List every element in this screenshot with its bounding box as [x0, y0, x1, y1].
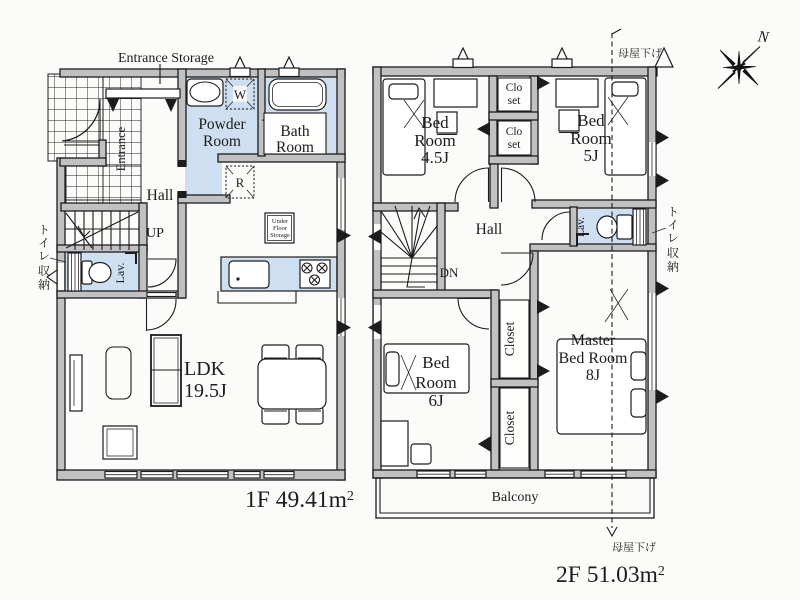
- svg-text:5J: 5J: [583, 146, 599, 165]
- svg-text:1F 49.41m2: 1F 49.41m2: [245, 487, 354, 513]
- svg-text:Entrance Storage: Entrance Storage: [118, 51, 214, 66]
- svg-text:Closet: Closet: [502, 411, 517, 446]
- svg-text:set: set: [508, 95, 522, 107]
- svg-text:Room: Room: [276, 139, 314, 156]
- svg-text:LDK: LDK: [184, 358, 226, 380]
- svg-text:Storage: Storage: [270, 232, 290, 239]
- svg-text:set: set: [508, 139, 522, 151]
- svg-text:8J: 8J: [586, 367, 600, 384]
- svg-text:Powder: Powder: [198, 116, 246, 133]
- svg-text:W: W: [234, 87, 247, 102]
- svg-text:Bed: Bed: [577, 111, 605, 130]
- svg-text:Entrance: Entrance: [114, 126, 128, 171]
- svg-text:Under: Under: [272, 218, 289, 225]
- svg-text:Lav.: Lav.: [113, 263, 127, 284]
- svg-text:6J: 6J: [428, 391, 444, 410]
- svg-text:DN: DN: [440, 265, 459, 280]
- svg-text:19.5J: 19.5J: [184, 380, 227, 402]
- svg-text:UP: UP: [146, 226, 164, 241]
- svg-text:Room: Room: [203, 133, 241, 150]
- svg-text:Lav.: Lav.: [575, 217, 587, 237]
- svg-text:R: R: [236, 175, 245, 190]
- svg-text:Clo: Clo: [506, 126, 523, 138]
- svg-text:Clo: Clo: [506, 82, 523, 94]
- svg-text:Bath: Bath: [280, 123, 310, 140]
- svg-text:Bed: Bed: [422, 353, 450, 372]
- svg-text:Room: Room: [415, 373, 457, 392]
- svg-text:2F 51.03m2: 2F 51.03m2: [556, 562, 665, 588]
- svg-text:Hall: Hall: [476, 221, 503, 238]
- svg-text:Hall: Hall: [147, 187, 174, 204]
- svg-text:Bed Room: Bed Room: [559, 350, 628, 367]
- svg-text:Master: Master: [571, 332, 616, 349]
- svg-text:Bed: Bed: [421, 113, 449, 132]
- svg-text:Closet: Closet: [502, 322, 517, 357]
- svg-text:Floor: Floor: [273, 225, 288, 232]
- svg-text:4.5J: 4.5J: [421, 148, 449, 167]
- svg-text:Balcony: Balcony: [492, 490, 539, 505]
